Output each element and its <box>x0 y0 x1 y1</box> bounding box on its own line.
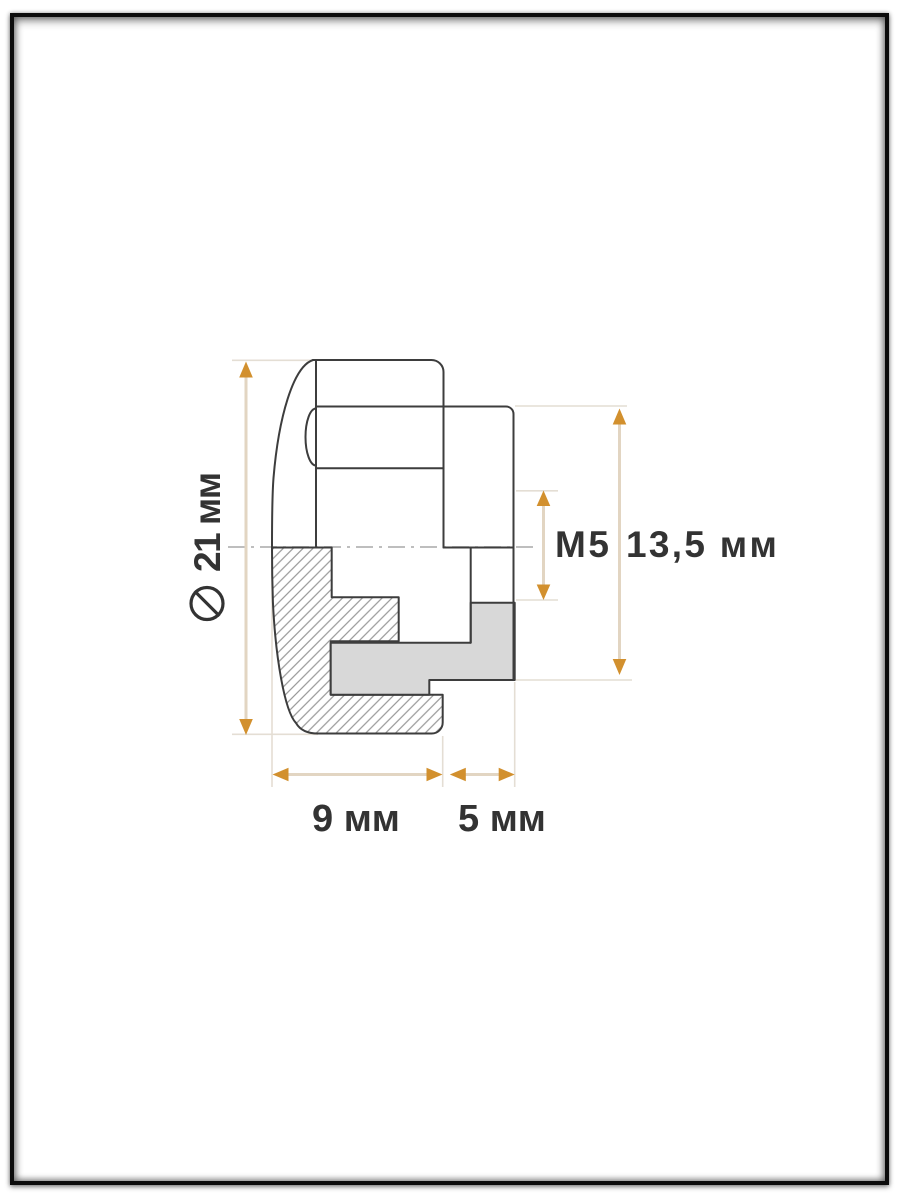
svg-text:21 мм: 21 мм <box>187 473 228 572</box>
svg-text:5 мм: 5 мм <box>458 798 546 840</box>
svg-text:9 мм: 9 мм <box>312 798 400 840</box>
svg-text:M5: M5 <box>555 524 611 565</box>
svg-text:13,5 мм: 13,5 мм <box>626 524 779 565</box>
